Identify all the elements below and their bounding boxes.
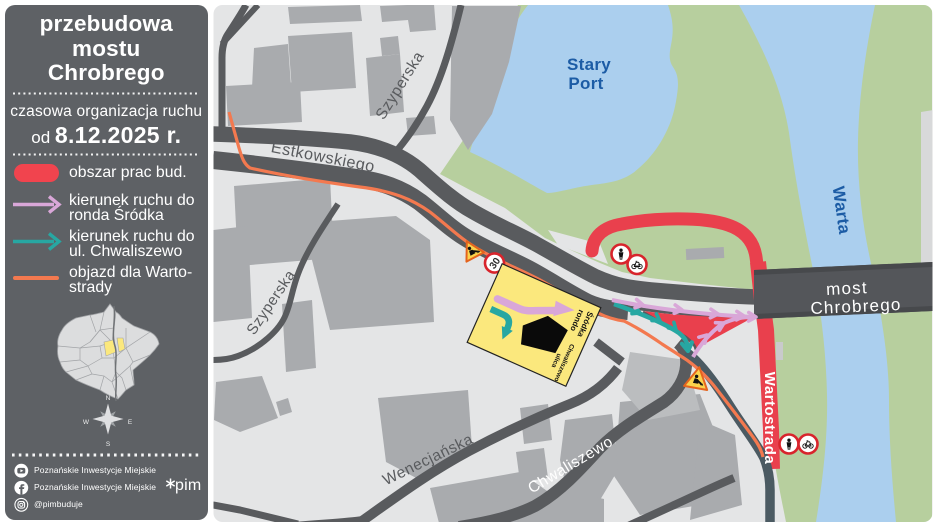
svg-text:W: W [83, 419, 90, 426]
svg-text:Port: Port [568, 74, 603, 93]
svg-text:Stary: Stary [567, 55, 611, 74]
svg-text:Wartostrada: Wartostrada [761, 372, 778, 465]
svg-text:E: E [128, 419, 133, 426]
svg-text:S: S [106, 441, 111, 448]
svg-text:N: N [106, 395, 111, 402]
